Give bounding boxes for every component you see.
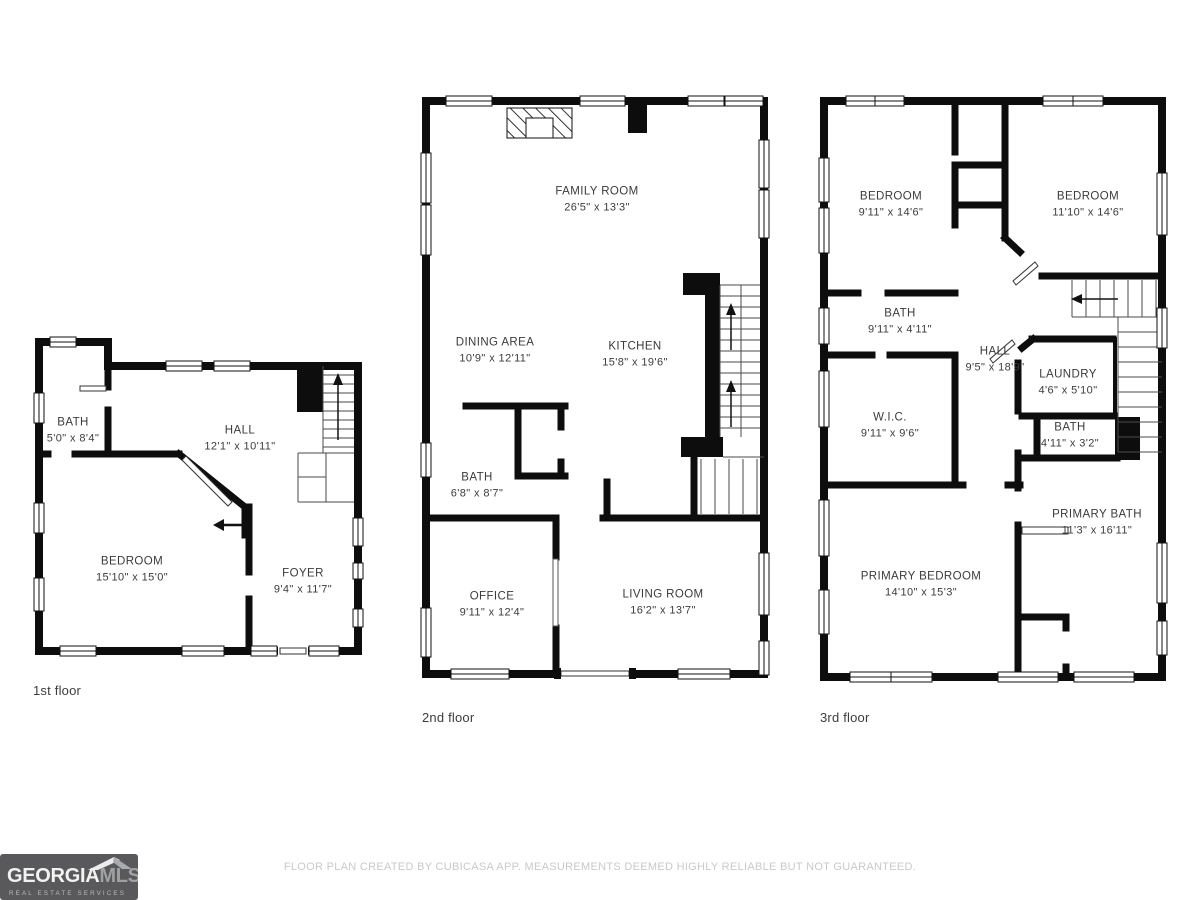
floor-caption-1st: 1st floor	[33, 683, 81, 698]
stair-wall-block	[297, 362, 323, 412]
room-label-dining-area: DINING AREA 10'9" x 12'11"	[456, 335, 535, 368]
room-label-bath: BATH 6'8" x 8'7"	[451, 470, 504, 503]
fireplace-icon	[507, 108, 572, 138]
floor-caption-2nd: 2nd floor	[422, 710, 474, 725]
room-label-kitchen: KITCHEN 15'8" x 19'6"	[602, 339, 668, 372]
room-label-primary-bedroom: PRIMARY BEDROOM 14'10" x 15'3"	[861, 569, 982, 602]
logo-brand-primary: GEORGIA	[7, 865, 99, 887]
logo-wordmark: GEORGIAMLS	[7, 865, 138, 888]
floor-plan-2nd: FAMILY ROOM 26'5" x 13'3" DINING AREA 10…	[420, 95, 770, 685]
floor-caption-3rd: 3rd floor	[820, 710, 870, 725]
room-label-hall: HALL 9'5" x 18'9"	[965, 344, 1024, 377]
logo-brand-secondary: MLS	[99, 865, 138, 887]
floor-plan-3rd: BEDROOM 9'11" x 14'6" BEDROOM 11'10" x 1…	[818, 95, 1168, 685]
stair-entry-arrow-icon	[213, 519, 242, 531]
room-label-family-room: FAMILY ROOM 26'5" x 13'3"	[555, 184, 638, 217]
georgia-mls-logo: GEORGIAMLS REAL ESTATE SERVICES	[0, 854, 138, 900]
floor-plan-1st: BATH 5'0" x 8'4" HALL 12'1" x 10'11" BED…	[30, 335, 365, 665]
room-label-primary-bath: PRIMARY BATH 11'3" x 16'11"	[1052, 507, 1142, 540]
room-label-office: OFFICE 9'11" x 12'4"	[460, 589, 525, 622]
logo-tagline: REAL ESTATE SERVICES	[9, 890, 126, 897]
room-label-wic: W.I.C. 9'11" x 9'6"	[861, 410, 919, 443]
stairs-up-arrow-icon	[726, 303, 736, 427]
room-label-hall: HALL 12'1" x 10'11"	[204, 423, 275, 456]
floor-plan-sheet: BATH 5'0" x 8'4" HALL 12'1" x 10'11" BED…	[0, 0, 1200, 900]
door-leaf	[80, 386, 106, 391]
room-label-bedroom-left: BEDROOM 9'11" x 14'6"	[859, 189, 924, 222]
room-label-living-room: LIVING ROOM 16'2" x 13'7"	[622, 587, 703, 620]
door-leaf	[1013, 262, 1038, 285]
stairs-up-arrow-icon	[333, 373, 343, 440]
stairs-down-arrow-icon	[1071, 294, 1118, 304]
room-label-bath-small: BATH 4'11" x 3'2"	[1041, 420, 1099, 453]
room-label-bedroom-right: BEDROOM 11'10" x 14'6"	[1052, 189, 1123, 222]
stair-wall-blocks	[681, 273, 723, 457]
footer-disclaimer: FLOOR PLAN CREATED BY CUBICASA APP. MEAS…	[0, 861, 1200, 873]
room-label-bath: BATH 5'0" x 8'4"	[47, 415, 100, 448]
room-label-bath-upper: BATH 9'11" x 4'11"	[868, 306, 932, 339]
wall-stub	[628, 97, 647, 133]
room-label-laundry: LAUNDRY 4'6" x 5'10"	[1038, 367, 1097, 400]
patio-opening	[554, 668, 636, 680]
stair-wall-block	[1115, 417, 1140, 460]
front-door	[278, 645, 308, 657]
room-label-bedroom: BEDROOM 15'10" x 15'0"	[96, 554, 168, 587]
floor-plan-1st-drawing	[30, 335, 365, 665]
room-label-foyer: FOYER 9'4" x 11'7"	[274, 566, 332, 599]
door-leaf	[182, 456, 232, 506]
door-leaf	[553, 559, 558, 626]
